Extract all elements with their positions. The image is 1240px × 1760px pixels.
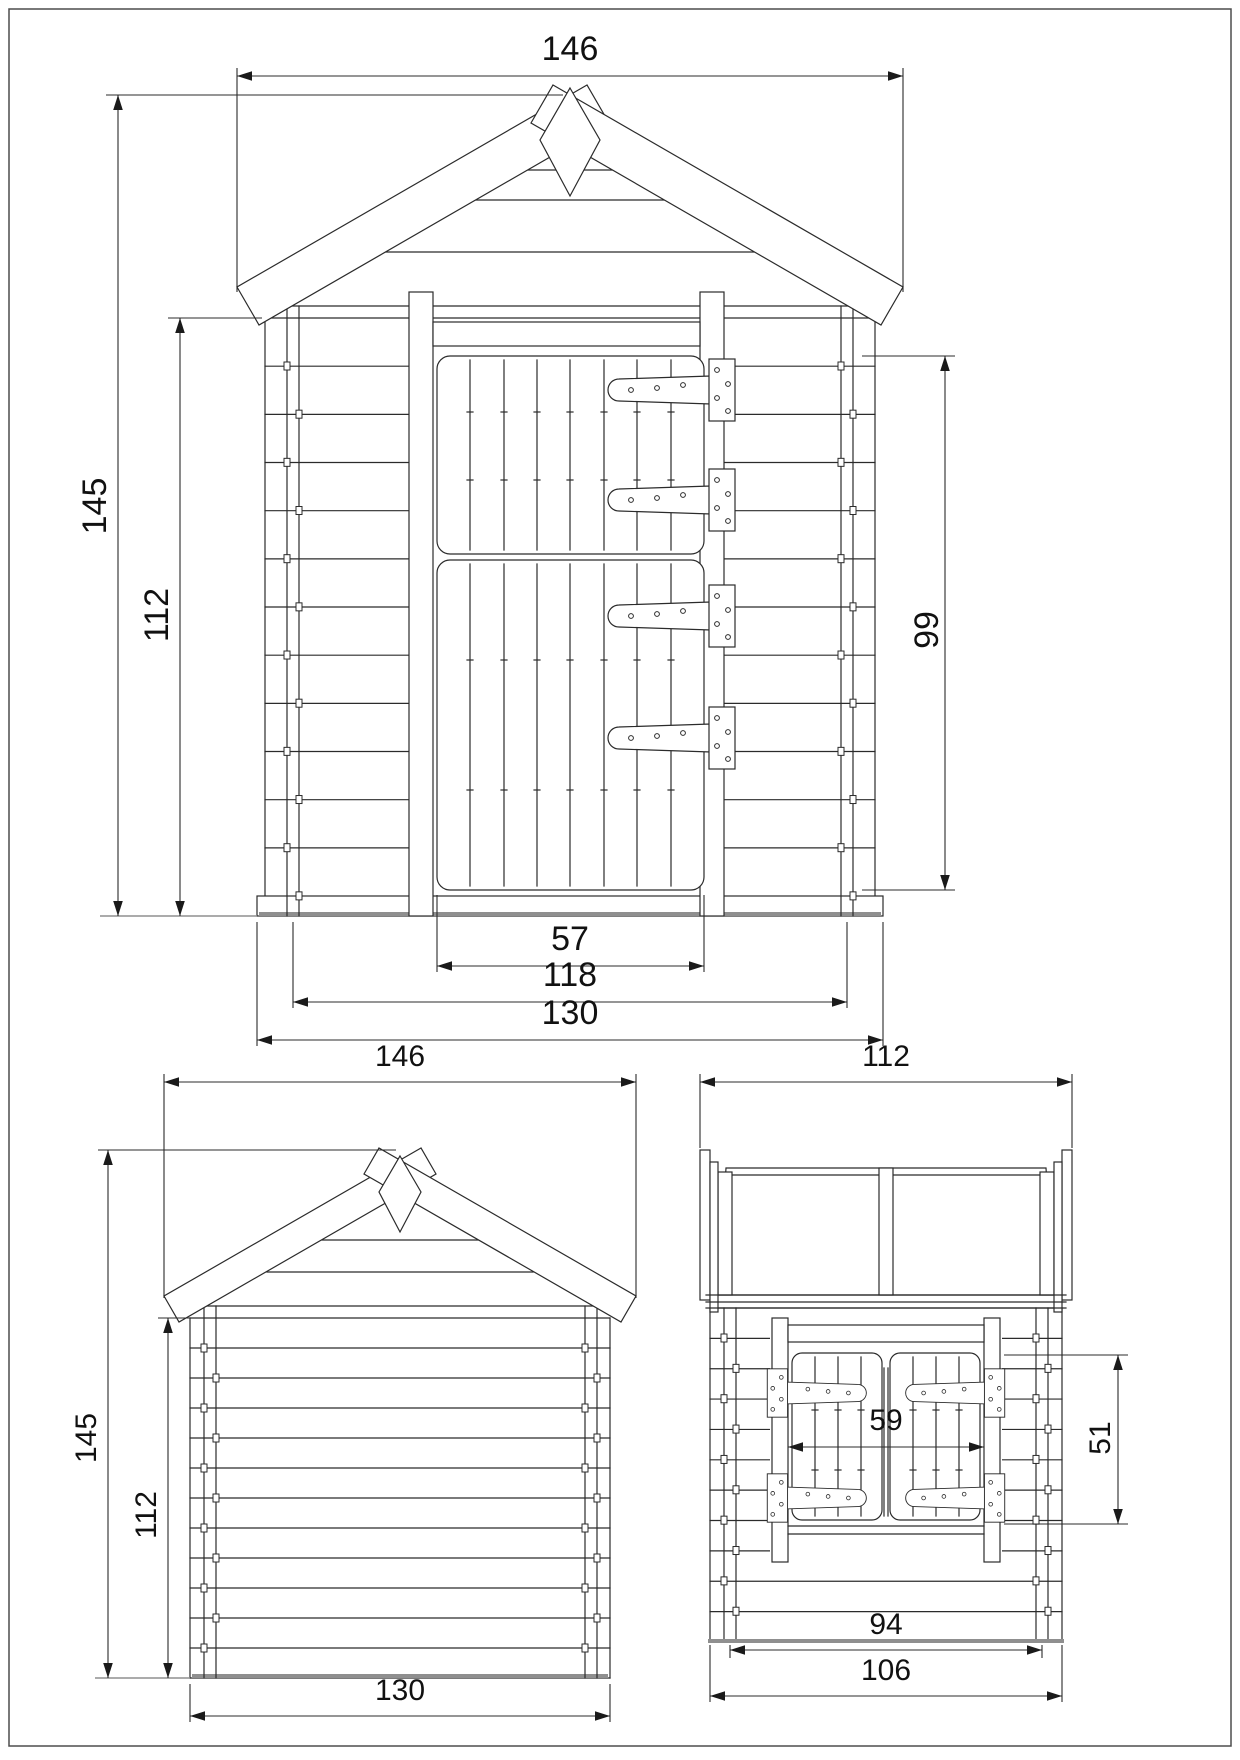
front-base-width-value: 130 (542, 994, 599, 1032)
side-roof-post-left (718, 1172, 732, 1295)
front-door-height-value: 99 (908, 611, 946, 649)
side-window-height-value: 51 (1084, 1421, 1117, 1454)
back-wall-height-value: 112 (130, 1491, 163, 1539)
back-base-width-dimension: 130 (190, 1674, 610, 1722)
back-wall-planks (190, 1318, 610, 1678)
back-roof (164, 1148, 636, 1322)
side-window-height-dimension: 51 (1004, 1355, 1128, 1524)
window-post-right (984, 1318, 1000, 1562)
side-inner-width-value: 94 (869, 1608, 902, 1641)
back-view-elevation (95, 1148, 636, 1678)
back-base-width-value: 130 (375, 1674, 425, 1707)
front-door-width-value: 57 (551, 920, 589, 958)
side-bargeboard-front-outer (700, 1150, 710, 1300)
door-lintel (433, 322, 700, 346)
window-post-left (772, 1318, 788, 1562)
side-wall-depth-value: 106 (861, 1654, 911, 1687)
side-depth-value: 112 (862, 1040, 910, 1073)
window-head-rail (788, 1325, 984, 1342)
front-wall-height-dimension: 112 (138, 318, 262, 916)
side-window-width-value: 59 (869, 1404, 902, 1437)
back-total-height-dimension: 145 (70, 1150, 396, 1678)
back-roof-width-value: 146 (375, 1040, 425, 1073)
front-door-height-dimension: 99 (862, 356, 955, 890)
front-frame-width-value: 118 (543, 956, 597, 994)
side-inner-width-dimension: 94 (730, 1608, 1042, 1658)
door-post-left (409, 292, 433, 916)
front-view-elevation (100, 85, 903, 916)
side-roof (700, 1150, 1072, 1312)
technical-drawing: 146 145 112 99 57 118 130 146 145 112 13… (0, 0, 1240, 1755)
drawing-page: 146 145 112 99 57 118 130 146 145 112 13… (0, 0, 1240, 1755)
side-depth-dimension: 112 (700, 1040, 1072, 1148)
side-wall-depth-dimension: 106 (710, 1645, 1062, 1702)
front-total-height-value: 145 (76, 478, 114, 535)
side-bargeboard-front-inner (710, 1162, 718, 1312)
front-roof (237, 85, 903, 325)
side-bargeboard-rear-inner (1054, 1162, 1062, 1312)
side-roof-post-middle (879, 1168, 893, 1295)
side-roof-post-right (1040, 1172, 1054, 1295)
side-view-elevation (700, 1150, 1072, 1642)
back-corner-joint-strips (201, 1306, 600, 1678)
front-wall-height-value: 112 (138, 588, 176, 642)
side-bargeboard-rear-outer (1062, 1150, 1072, 1300)
front-roof-width-value: 146 (542, 30, 599, 68)
back-total-height-value: 145 (70, 1413, 103, 1463)
